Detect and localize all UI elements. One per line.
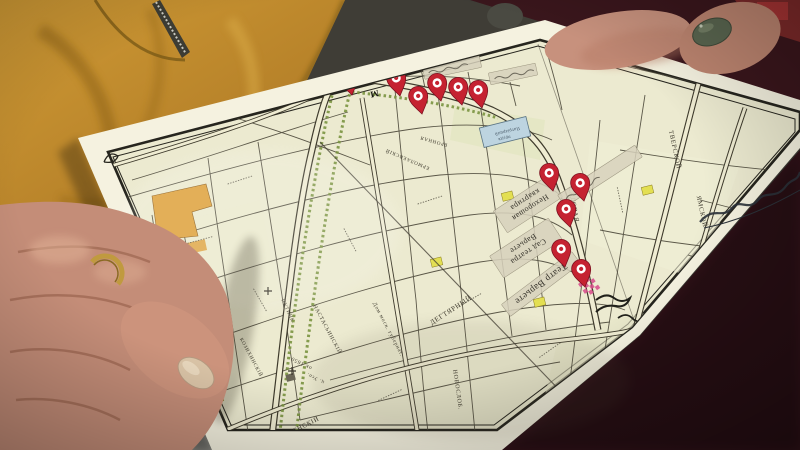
vignette [0, 0, 800, 450]
photo-of-map-in-hands: Патріаршій прудъ ТВЕРСКОЙЯМСКОЙСАДОВАЯДЕ… [0, 0, 800, 450]
